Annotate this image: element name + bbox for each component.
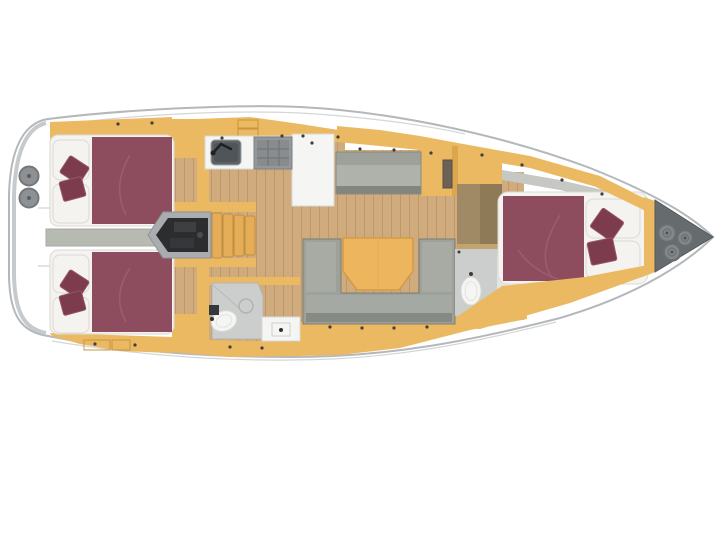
bow-bulkhead-strip	[644, 197, 655, 275]
aft-cabin-port	[50, 135, 174, 226]
handle-dot	[93, 342, 96, 345]
engine-detail-1	[174, 222, 196, 232]
u-sofa-right-arm-cushion	[422, 242, 452, 292]
handle-dot	[480, 153, 483, 156]
port-berth-blanket	[92, 137, 172, 224]
handle-dot	[133, 343, 136, 346]
starboard-berth-blanket	[92, 252, 172, 332]
handle-dot	[328, 325, 331, 328]
handle-dot	[228, 345, 231, 348]
galley-counter-column	[292, 134, 334, 206]
handle-dot	[429, 151, 432, 154]
rope-coil-3-center	[671, 251, 674, 254]
side-sofa-backrest	[336, 152, 421, 166]
u-sofa-left-arm-cushion	[306, 242, 336, 292]
handle-dot	[150, 121, 153, 124]
companionway	[148, 212, 255, 258]
handle-dot	[280, 134, 283, 137]
u-sofa-front-lip	[306, 313, 452, 322]
aft-cabin-starboard	[50, 250, 174, 334]
handle-dot	[360, 326, 363, 329]
cabinet-hatch-slit	[443, 160, 452, 188]
handle-dot	[220, 136, 223, 139]
yacht-floor-plan	[0, 0, 720, 540]
stern-deck-fitting-2-center	[27, 196, 31, 200]
companionway-steps	[212, 213, 255, 258]
step-4	[245, 216, 255, 255]
handle-dot	[358, 147, 361, 150]
rope-coil-2-center	[684, 237, 687, 240]
aft-vanity-faucet	[279, 328, 283, 332]
forward-accent-pillow-2	[587, 238, 617, 266]
handle-dot	[392, 326, 395, 329]
aft-toilet-cistern	[209, 305, 219, 315]
u-sofa-bench-cushion	[306, 295, 452, 313]
rope-coil-1-center	[666, 232, 669, 235]
handle-dot	[560, 178, 563, 181]
side-sofa-seat	[336, 165, 421, 188]
stove-grate	[257, 140, 289, 166]
handle-dot	[310, 141, 313, 144]
engine-detail-2	[170, 238, 194, 248]
handle-dot	[520, 163, 523, 166]
handle-dot	[425, 325, 428, 328]
step-3	[234, 215, 244, 256]
handle-dot	[336, 135, 339, 138]
forward-toilet-valve	[469, 272, 473, 276]
faucet-base	[211, 151, 216, 156]
step-1	[212, 213, 222, 258]
engine-detail-3	[197, 232, 203, 238]
stern-deck-fitting-1-center	[27, 174, 31, 178]
step-2	[223, 214, 233, 257]
aft-toilet-valve	[210, 317, 214, 321]
forward-head-fixture-dot	[458, 251, 461, 254]
side-sofa-front-lip	[336, 186, 421, 194]
handle-dot	[392, 148, 395, 151]
forward-berth-blanket	[503, 196, 584, 281]
handle-dot	[600, 192, 603, 195]
handle-dot	[301, 134, 304, 137]
floor-plan-canvas	[0, 0, 720, 540]
handle-dot	[116, 122, 119, 125]
aft-port-wardrobe	[172, 119, 200, 158]
handle-dot	[260, 346, 263, 349]
